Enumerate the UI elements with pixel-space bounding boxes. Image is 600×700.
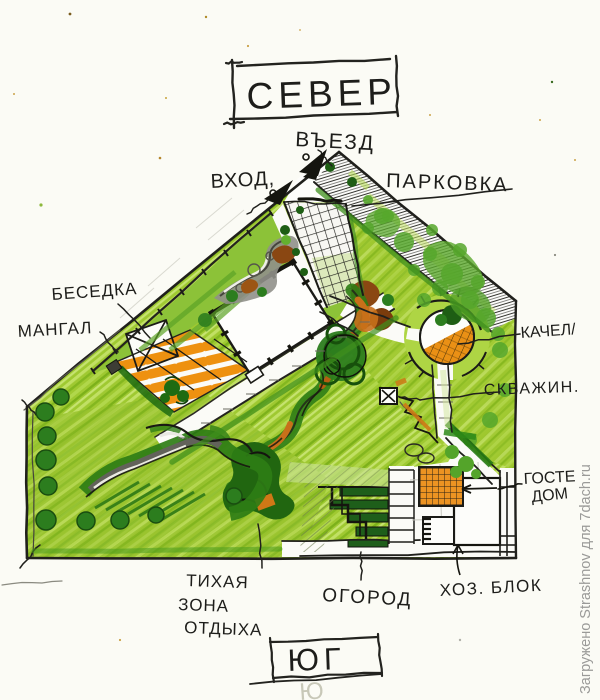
svg-text:Загружено Strashnov для 7dach.: Загружено Strashnov для 7dach.ru [578,464,594,694]
svg-text:ПАРКОВКА: ПАРКОВКА [386,170,509,196]
svg-text:ЮГ: ЮГ [287,641,346,678]
svg-text:МАНГАЛ: МАНГАЛ [17,318,93,341]
svg-text:ЗОНА: ЗОНА [178,595,230,616]
svg-text:СЕВЕР: СЕВЕР [246,71,398,117]
svg-text:ВЪЕЗД: ВЪЕЗД [295,128,376,155]
svg-text:ОТДЫХА: ОТДЫХА [184,618,263,640]
svg-text:Ю: Ю [299,677,325,700]
svg-text:ВХОД,: ВХОД, [210,168,275,193]
svg-text:СКВАЖИН.: СКВАЖИН. [484,379,581,399]
svg-text:ТИХАЯ: ТИХАЯ [186,571,249,592]
svg-text:ГОСТЕ: ГОСТЕ [523,468,576,488]
